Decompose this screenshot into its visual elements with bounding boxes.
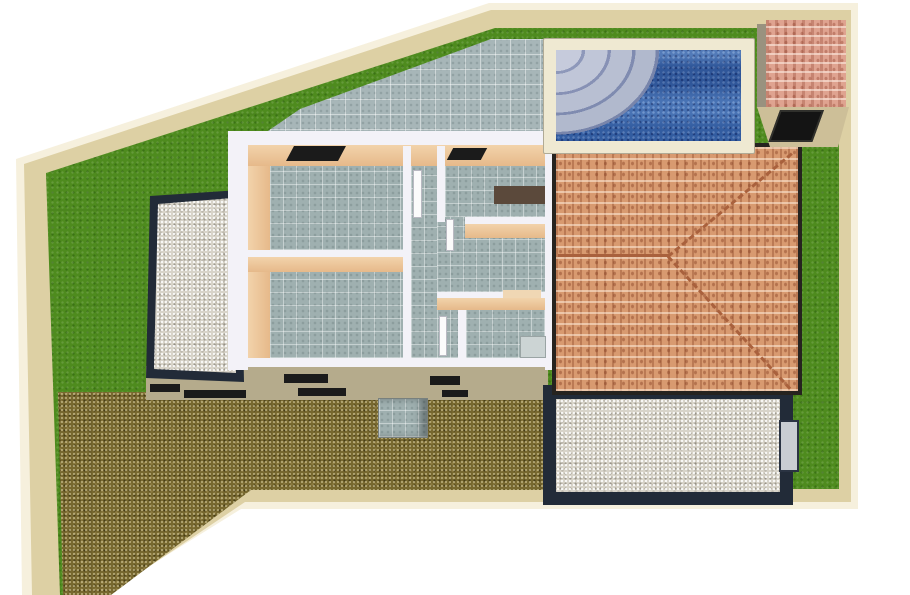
house-wall-top (228, 131, 560, 146)
house-wall-left (228, 131, 248, 370)
hip-roof (552, 143, 802, 395)
room-floor-northwest (270, 166, 403, 250)
facade-window (430, 376, 460, 385)
room-floor-southwest (270, 272, 403, 358)
interior-door (439, 316, 447, 356)
bathroom-fixture (520, 336, 546, 358)
house-south-wall-top (228, 357, 548, 367)
kitchen-counter (494, 186, 545, 204)
facade-window (298, 388, 346, 396)
roof-hip (667, 153, 793, 258)
roof-hip (667, 255, 791, 389)
interior-wall (437, 146, 445, 222)
entry-stoop (378, 398, 428, 438)
facade-window (150, 384, 180, 392)
courtyard-gate (779, 420, 799, 472)
site-plan-canvas (0, 0, 910, 595)
interior-door (446, 219, 454, 251)
interior-wall (248, 250, 403, 257)
interior-wall-face (465, 224, 545, 238)
interior-wall (465, 217, 545, 224)
interior-wall (403, 146, 411, 358)
roof-ridge (558, 254, 670, 257)
facade-window (284, 374, 328, 383)
north-window (286, 146, 346, 161)
southeast-courtyard-gravel (556, 399, 780, 492)
north-window (447, 148, 487, 160)
interior-wall-face (248, 257, 403, 272)
facade-window (442, 390, 468, 397)
interior-wall (458, 310, 466, 358)
wall-ledge (503, 290, 541, 298)
interior-wall-face (437, 298, 545, 310)
interior-door (413, 170, 422, 218)
facade-window (184, 390, 246, 398)
garden-shed-roof (766, 20, 846, 112)
